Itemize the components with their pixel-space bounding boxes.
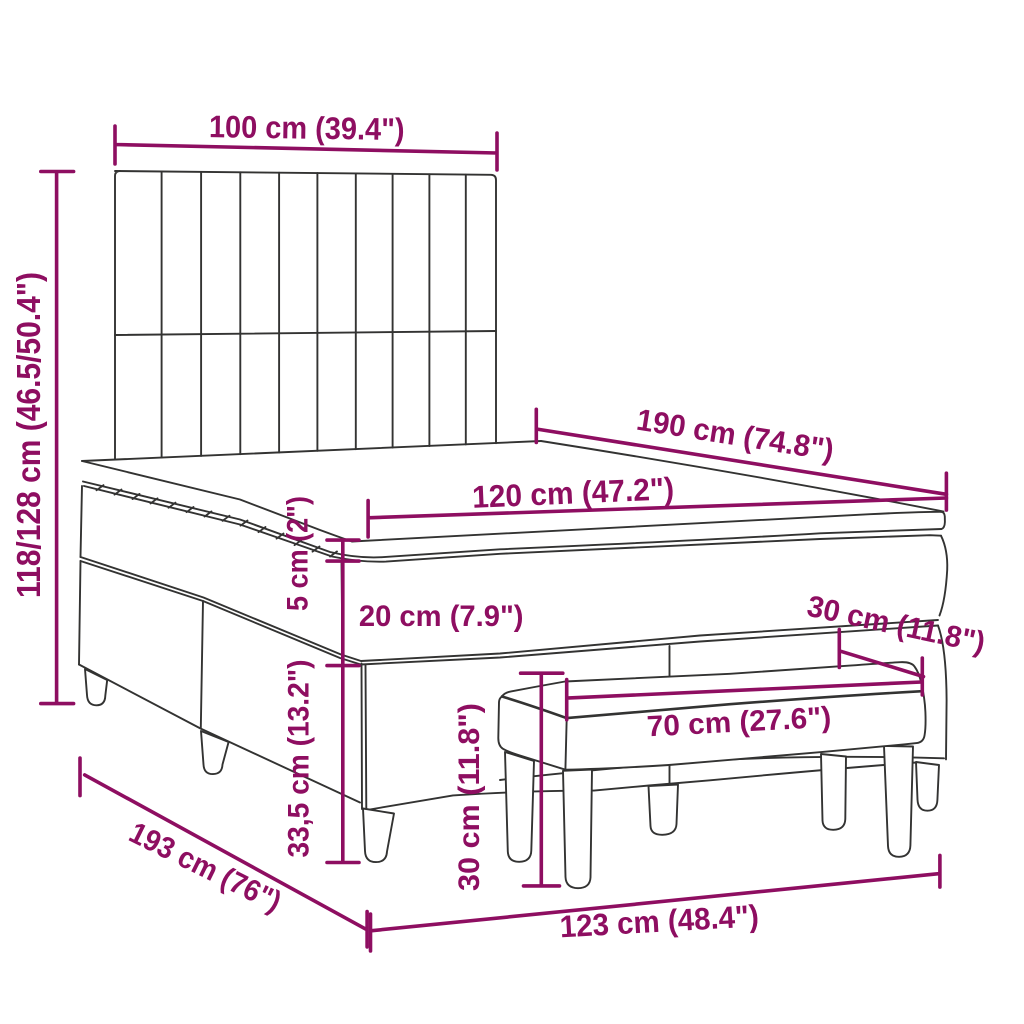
svg-text:33,5 cm (13.2"): 33,5 cm (13.2")	[283, 660, 316, 858]
svg-text:100 cm (39.4"): 100 cm (39.4")	[209, 109, 405, 147]
svg-text:30 cm (11.8"): 30 cm (11.8")	[453, 703, 486, 891]
svg-text:118/128 cm (46.5/50.4"): 118/128 cm (46.5/50.4")	[10, 272, 47, 598]
svg-text:20 cm (7.9"): 20 cm (7.9")	[359, 600, 524, 633]
svg-text:5 cm (2"): 5 cm (2")	[282, 496, 315, 611]
